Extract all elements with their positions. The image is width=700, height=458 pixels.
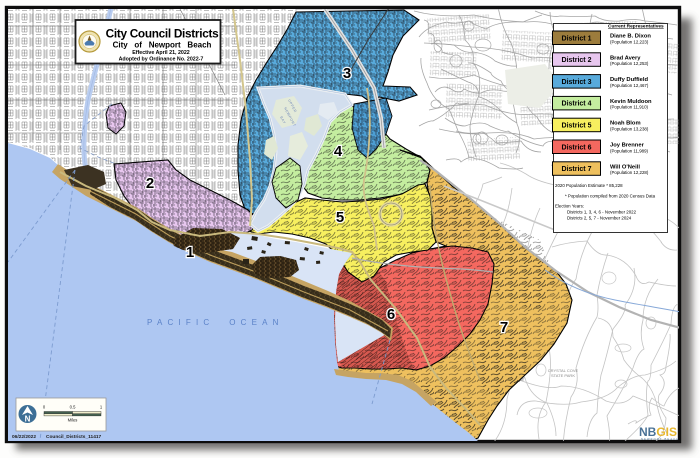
svg-text:(Population 11,989): (Population 11,989) [610, 148, 649, 153]
svg-text:(Population 11,910): (Population 11,910) [610, 105, 649, 110]
svg-text:06/22/2022: 06/22/2022 [12, 434, 36, 440]
svg-text:PACIFIC OCEAN: PACIFIC OCEAN [147, 318, 284, 327]
svg-text:District 1: District 1 [562, 35, 592, 42]
svg-text:2020 Population Estimate * 85: 2020 Population Estimate * 85,228 [555, 183, 623, 188]
svg-text:District 7: District 7 [562, 166, 592, 173]
svg-text:Election Years:: Election Years: [555, 204, 584, 209]
svg-text:STATE PARK: STATE PARK [551, 373, 575, 378]
svg-text:(Population 12,223): (Population 12,223) [610, 39, 649, 44]
svg-text:District 4: District 4 [562, 101, 592, 108]
svg-text:NEWPORT BEACH: NEWPORT BEACH [641, 437, 679, 441]
svg-text:(Population 13,238): (Population 13,238) [610, 127, 649, 132]
svg-text:Districts 1, 3, 4, 6 - Novembe: Districts 1, 3, 4, 6 - November 2022 [567, 210, 637, 215]
svg-text:1: 1 [186, 244, 194, 261]
svg-text:District 2: District 2 [562, 57, 592, 64]
svg-text:Effective April 21, 2022: Effective April 21, 2022 [132, 50, 190, 56]
svg-text:Council_Districts_11417: Council_Districts_11417 [46, 434, 102, 440]
svg-text:Current Representatives: Current Representatives [608, 24, 664, 30]
svg-text:(Population 12,467): (Population 12,467) [610, 83, 649, 88]
svg-text:(Population 12,253): (Population 12,253) [610, 61, 649, 66]
svg-text:Adopted by Ordinance No. 2022-: Adopted by Ordinance No. 2022-7 [119, 57, 204, 63]
svg-text:City Council Districts: City Council Districts [106, 27, 219, 41]
svg-text:District 5: District 5 [562, 123, 592, 130]
svg-text:Miles: Miles [68, 418, 78, 423]
svg-text:4: 4 [334, 143, 343, 160]
svg-text:(Population 12,228): (Population 12,228) [610, 170, 649, 175]
svg-text:NBGIS: NBGIS [639, 425, 677, 439]
svg-text:District 3: District 3 [562, 79, 592, 86]
svg-text:* Population compiled from 202: * Population compiled from 2020 Census D… [565, 194, 656, 199]
svg-text:6: 6 [387, 306, 395, 323]
svg-text:Districts 2, 5, 7 - November 2: Districts 2, 5, 7 - November 2024 [567, 216, 632, 221]
svg-text:0.5: 0.5 [70, 405, 76, 410]
svg-text:5: 5 [336, 209, 344, 226]
svg-text:District 6: District 6 [562, 144, 592, 151]
svg-text:City of Newport Beach: City of Newport Beach [113, 41, 212, 50]
svg-text:N: N [25, 415, 31, 424]
svg-text:3: 3 [343, 65, 351, 82]
svg-text:2: 2 [146, 175, 154, 192]
svg-text:7: 7 [500, 319, 508, 336]
